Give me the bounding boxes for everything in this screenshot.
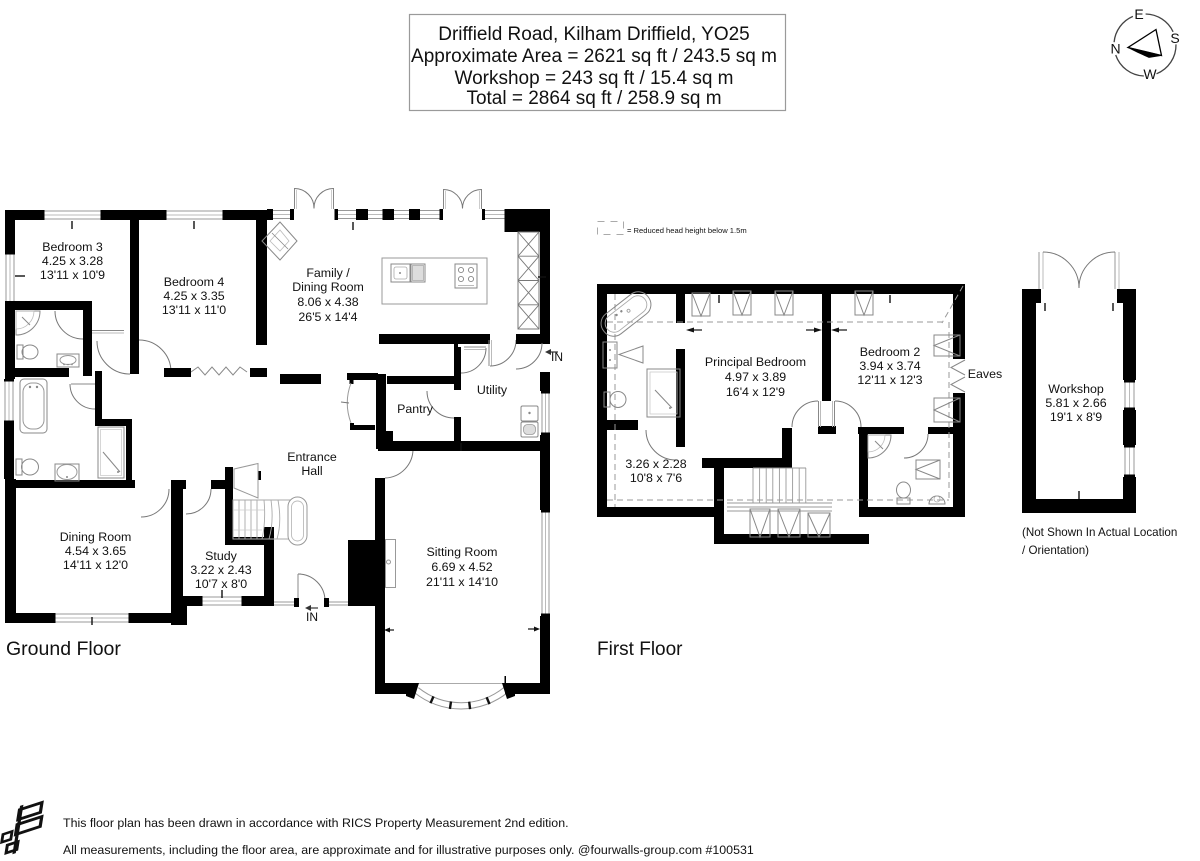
svg-text:Driffield Road, Kilham Driffie: Driffield Road, Kilham Driffield, YO25	[438, 24, 750, 45]
svg-text:5.81 x 2.66: 5.81 x 2.66	[1045, 396, 1106, 410]
svg-text:12'11 x 12'3: 12'11 x 12'3	[857, 373, 922, 387]
svg-text:4.25 x 3.28: 4.25 x 3.28	[42, 254, 103, 268]
svg-text:This floor plan has been drawn: This floor plan has been drawn in accord…	[63, 816, 569, 830]
svg-text:Entrance: Entrance	[287, 450, 337, 464]
svg-text:13'11 x 10'9: 13'11 x 10'9	[40, 268, 105, 282]
svg-text:19'1 x 8'9: 19'1 x 8'9	[1050, 410, 1102, 424]
svg-text:16'4 x 12'9: 16'4 x 12'9	[726, 385, 785, 399]
svg-text:Principal Bedroom: Principal Bedroom	[705, 355, 806, 369]
svg-text:14'11 x 12'0: 14'11 x 12'0	[63, 558, 128, 572]
svg-text:N: N	[1111, 41, 1121, 57]
svg-text:W: W	[1143, 66, 1157, 82]
svg-text:6.69 x 4.52: 6.69 x 4.52	[431, 560, 492, 574]
svg-text:Bedroom 2: Bedroom 2	[860, 345, 921, 359]
svg-text:Pantry: Pantry	[397, 402, 434, 416]
svg-text:Approximate Area = 2621 sq ft: Approximate Area = 2621 sq ft / 243.5 sq…	[411, 46, 777, 67]
svg-text:26'5 x 14'4: 26'5 x 14'4	[298, 310, 357, 324]
svg-text:S: S	[1170, 30, 1179, 46]
svg-text:Total = 2864 sq ft / 258.9 sq: Total = 2864 sq ft / 258.9 sq m	[466, 88, 721, 109]
svg-text:Dining Room: Dining Room	[292, 280, 364, 294]
svg-text:Bedroom 4: Bedroom 4	[164, 275, 225, 289]
svg-text:8.06 x 4.38: 8.06 x 4.38	[297, 295, 358, 309]
svg-text:21'11 x 14'10: 21'11 x 14'10	[426, 575, 498, 589]
svg-text:Bedroom 3: Bedroom 3	[42, 240, 103, 254]
svg-text:Eaves: Eaves	[968, 367, 1002, 381]
svg-text:10'8 x 7'6: 10'8 x 7'6	[630, 471, 682, 485]
svg-text:Hall: Hall	[301, 464, 322, 478]
svg-text:Family /: Family /	[306, 266, 350, 280]
svg-text:Workshop: Workshop	[1048, 382, 1104, 396]
svg-text:3.94 x 3.74: 3.94 x 3.74	[859, 359, 920, 373]
svg-text:10'7 x 8'0: 10'7 x 8'0	[195, 577, 247, 591]
svg-text:Study: Study	[205, 549, 237, 563]
svg-text:13'11 x 11'0: 13'11 x 11'0	[162, 303, 226, 317]
svg-text:4.54 x 3.65: 4.54 x 3.65	[65, 544, 126, 558]
svg-text:Workshop = 243 sq ft / 15.4 sq: Workshop = 243 sq ft / 15.4 sq m	[455, 68, 734, 89]
svg-text:IN: IN	[306, 610, 318, 624]
svg-text:3.26 x 2.28: 3.26 x 2.28	[625, 457, 686, 471]
svg-text:Ground Floor: Ground Floor	[6, 638, 121, 660]
svg-text:/ Orientation): / Orientation)	[1022, 544, 1089, 557]
svg-text:Utility: Utility	[477, 383, 508, 397]
svg-text:All measurements, including th: All measurements, including the floor ar…	[63, 843, 754, 857]
svg-text:E: E	[1134, 6, 1143, 22]
svg-text:= Reduced head height below 1.: = Reduced head height below 1.5m	[627, 226, 747, 235]
svg-text:First Floor: First Floor	[597, 639, 683, 660]
svg-text:Dining Room: Dining Room	[60, 530, 132, 544]
svg-text:Sitting Room: Sitting Room	[427, 545, 498, 559]
svg-text:3.22 x 2.43: 3.22 x 2.43	[190, 563, 251, 577]
svg-text:4.97 x 3.89: 4.97 x 3.89	[725, 370, 786, 384]
svg-text:(Not Shown In Actual Location: (Not Shown In Actual Location	[1022, 526, 1177, 539]
svg-text:4.25 x 3.35: 4.25 x 3.35	[163, 289, 224, 303]
